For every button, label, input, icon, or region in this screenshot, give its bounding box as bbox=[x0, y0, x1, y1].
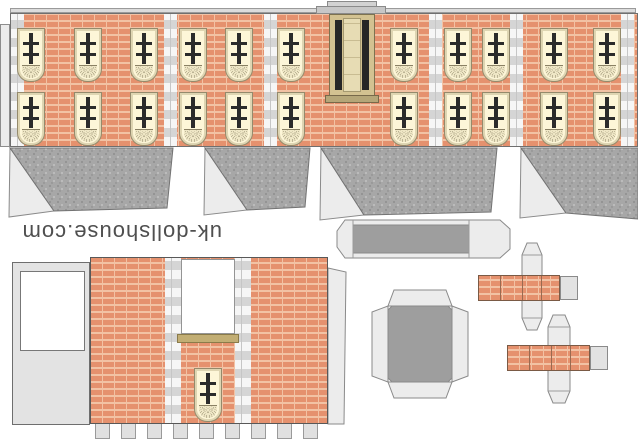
sash-window bbox=[391, 29, 417, 81]
window-fanlight bbox=[135, 65, 153, 78]
window-fanlight bbox=[545, 129, 563, 142]
sash-window bbox=[445, 93, 471, 145]
window-glazing bbox=[136, 33, 152, 64]
window-glazing bbox=[23, 33, 39, 64]
window-fanlight bbox=[598, 65, 616, 78]
window-glazing bbox=[396, 97, 412, 128]
chimney-brick-strip-1 bbox=[478, 275, 560, 301]
quoin-strip bbox=[264, 14, 277, 146]
rear-side-panel bbox=[12, 262, 90, 425]
sash-window bbox=[278, 93, 304, 145]
rear-side-opening bbox=[20, 271, 85, 351]
glue-tab bbox=[199, 424, 214, 439]
window-fanlight bbox=[487, 129, 505, 142]
window-glazing bbox=[200, 373, 216, 404]
window-fanlight bbox=[598, 129, 616, 142]
window-fanlight bbox=[184, 65, 202, 78]
rear-door-opening bbox=[181, 259, 235, 334]
window-fanlight bbox=[449, 65, 467, 78]
window-fanlight bbox=[395, 129, 413, 142]
window-fanlight bbox=[545, 65, 563, 78]
sash-window bbox=[226, 29, 252, 81]
window-glazing bbox=[185, 97, 201, 128]
chimney-cap-1 bbox=[560, 276, 578, 300]
rear-wall-piece bbox=[12, 257, 346, 440]
window-fanlight bbox=[22, 65, 40, 78]
window-glazing bbox=[546, 97, 562, 128]
facade-left-glue-tab bbox=[0, 24, 10, 147]
window-glazing bbox=[450, 97, 466, 128]
door-cornice bbox=[316, 6, 386, 14]
rear-brick-panel bbox=[90, 257, 328, 424]
window-fanlight bbox=[22, 129, 40, 142]
window-glazing bbox=[546, 33, 562, 64]
sash-window bbox=[180, 93, 206, 145]
sash-window bbox=[445, 29, 471, 81]
window-glazing bbox=[488, 33, 504, 64]
sash-window bbox=[75, 29, 101, 81]
sash-window bbox=[483, 93, 509, 145]
sash-window bbox=[195, 369, 221, 421]
quoin-strip bbox=[429, 14, 442, 146]
window-glazing bbox=[136, 97, 152, 128]
window-fanlight bbox=[135, 129, 153, 142]
window-glazing bbox=[488, 97, 504, 128]
window-fanlight bbox=[230, 129, 248, 142]
window-fanlight bbox=[282, 129, 300, 142]
sash-window bbox=[278, 29, 304, 81]
glue-tab bbox=[121, 424, 136, 439]
window-glazing bbox=[231, 33, 247, 64]
window-fanlight bbox=[487, 65, 505, 78]
base-box-piece bbox=[372, 290, 468, 398]
sash-window bbox=[594, 93, 620, 145]
glue-tab bbox=[173, 424, 188, 439]
window-glazing bbox=[283, 97, 299, 128]
rear-opening-sill bbox=[177, 334, 239, 343]
quoin-strip bbox=[164, 14, 177, 146]
window-glazing bbox=[23, 97, 39, 128]
glue-tab bbox=[277, 424, 292, 439]
sash-window bbox=[226, 93, 252, 145]
window-glazing bbox=[450, 33, 466, 64]
papercraft-sheet: uk-dollshouse.com bbox=[0, 0, 638, 440]
rear-glue-tab-row bbox=[95, 424, 330, 440]
window-fanlight bbox=[184, 129, 202, 142]
sash-window bbox=[18, 93, 44, 145]
roof-flap-2 bbox=[204, 148, 310, 215]
sash-window bbox=[594, 29, 620, 81]
facade-wall bbox=[10, 13, 638, 147]
ridge-box-piece bbox=[337, 220, 510, 258]
window-glazing bbox=[396, 33, 412, 64]
chimney-brick-strip-2 bbox=[507, 345, 590, 371]
glue-tab bbox=[225, 424, 240, 439]
window-fanlight bbox=[395, 65, 413, 78]
window-glazing bbox=[231, 97, 247, 128]
sash-window bbox=[541, 93, 567, 145]
door-leaf bbox=[343, 18, 361, 92]
roof-flap-3 bbox=[320, 148, 497, 220]
sash-window bbox=[483, 29, 509, 81]
window-fanlight bbox=[199, 405, 217, 418]
sash-window bbox=[180, 29, 206, 81]
glue-tab bbox=[147, 424, 162, 439]
roof-flap-4 bbox=[520, 148, 638, 219]
door-sill bbox=[325, 95, 379, 103]
window-glazing bbox=[599, 97, 615, 128]
window-fanlight bbox=[79, 129, 97, 142]
glue-tab bbox=[95, 424, 110, 439]
quoin-strip bbox=[510, 14, 523, 146]
window-fanlight bbox=[449, 129, 467, 142]
window-glazing bbox=[283, 33, 299, 64]
sash-window bbox=[541, 29, 567, 81]
glue-tab bbox=[303, 424, 318, 439]
window-fanlight bbox=[79, 65, 97, 78]
window-fanlight bbox=[282, 65, 300, 78]
window-fanlight bbox=[230, 65, 248, 78]
chimney-cap-2 bbox=[590, 346, 608, 370]
brand-text: uk-dollshouse.com bbox=[10, 216, 222, 248]
window-glazing bbox=[80, 33, 96, 64]
quoin-strip bbox=[621, 14, 634, 146]
sash-window bbox=[131, 93, 157, 145]
window-glazing bbox=[80, 97, 96, 128]
window-glazing bbox=[185, 33, 201, 64]
sash-window bbox=[391, 93, 417, 145]
glue-tab bbox=[251, 424, 266, 439]
sash-window bbox=[131, 29, 157, 81]
door-sidelight-left bbox=[335, 20, 342, 90]
window-glazing bbox=[599, 33, 615, 64]
sash-window bbox=[18, 29, 44, 81]
sash-window bbox=[75, 93, 101, 145]
door-sidelight-right bbox=[362, 20, 369, 90]
roof-flap-1 bbox=[9, 148, 173, 217]
